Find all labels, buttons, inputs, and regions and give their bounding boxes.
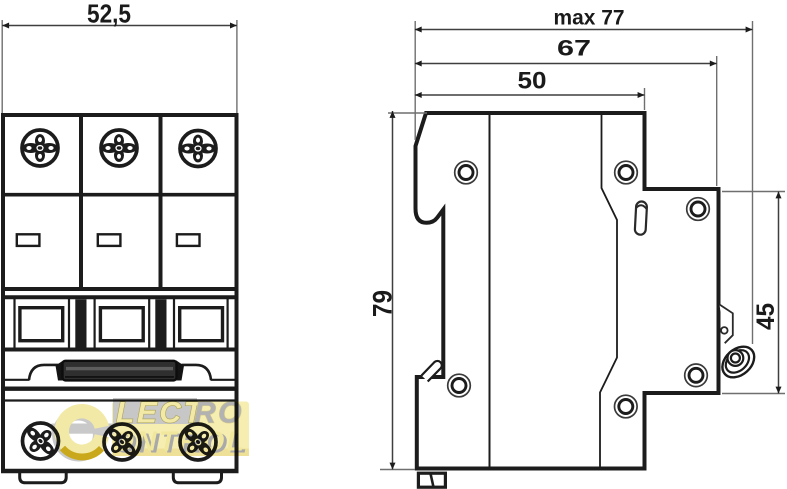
svg-text:45: 45 [752, 303, 780, 330]
svg-text:67: 67 [557, 36, 591, 61]
svg-text:OL: OL [203, 426, 247, 457]
svg-text:79: 79 [368, 290, 398, 317]
svg-text:ONTR: ONTR [112, 426, 201, 457]
svg-text:52,5: 52,5 [87, 0, 131, 29]
svg-text:50: 50 [518, 67, 547, 94]
svg-text:max 77: max 77 [554, 6, 625, 30]
